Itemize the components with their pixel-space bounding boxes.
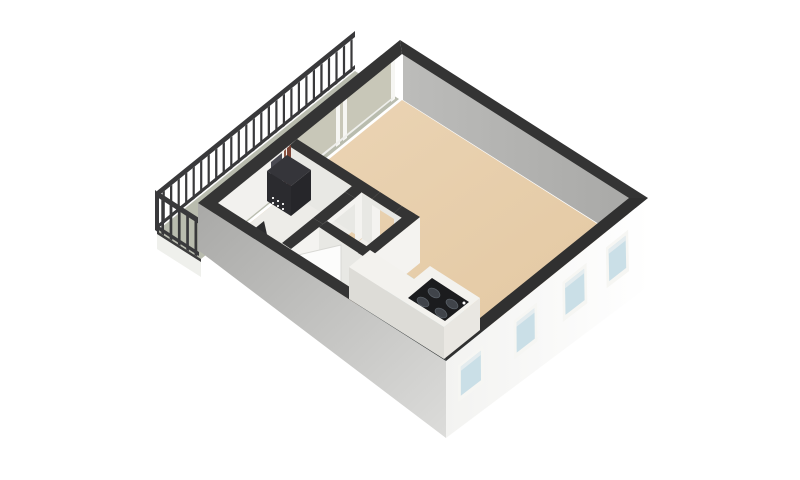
- floorplan-3d-view: [0, 0, 800, 480]
- floorplan-viewport: [0, 0, 800, 480]
- cooktop-knob: [463, 302, 466, 305]
- railing-corner-post: [155, 190, 159, 233]
- closet-wall-face: [355, 192, 362, 244]
